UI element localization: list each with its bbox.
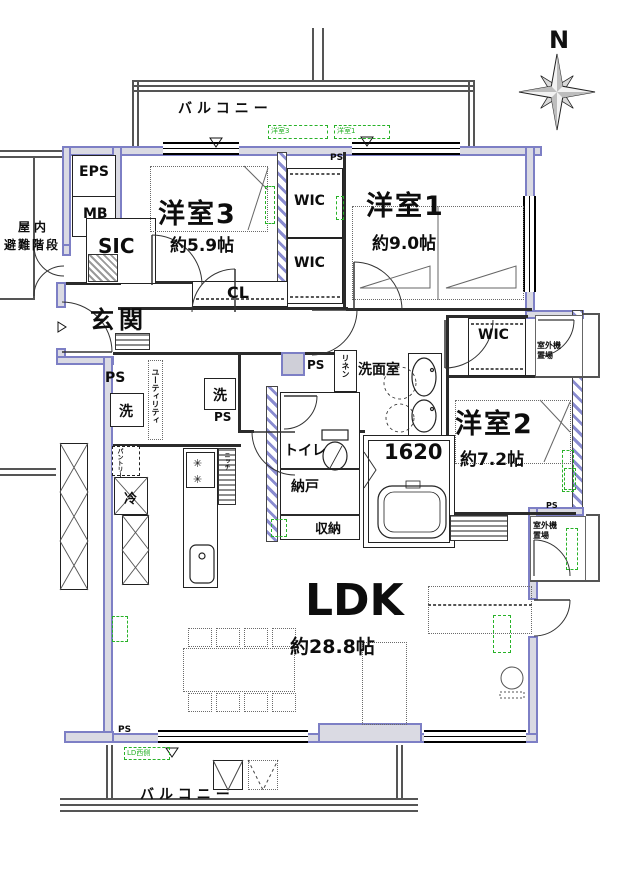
washer-left-label: 洗 <box>119 401 133 421</box>
niche-label: ニッチ <box>222 452 231 476</box>
annotation-room3-window: 洋室3 <box>268 125 328 139</box>
utility-label: ユーティリティ <box>150 368 161 434</box>
eps-label: EPS <box>79 164 109 180</box>
nando-label: 納戸 <box>291 476 319 496</box>
ldk-size: 約28.8帖 <box>290 632 375 659</box>
ps-label-bottom: PS <box>118 725 131 735</box>
linen-label: リネン <box>340 354 351 390</box>
wic2-label: WIC <box>294 255 325 271</box>
outdoor-bottom-label-2: 置場 <box>533 530 549 541</box>
room3-name: 洋室3 <box>158 192 237 231</box>
mb-label: MB <box>83 206 108 222</box>
x-hatches <box>60 443 149 590</box>
pantry-label: パントリー <box>115 448 124 475</box>
annotation-mark <box>112 616 128 642</box>
annotation-ld-west: LD西側 <box>124 747 170 760</box>
compass-north-label: N <box>549 26 569 54</box>
stairs-label-2: 避難階段 <box>4 236 60 253</box>
annotation-mark <box>265 186 275 224</box>
cl-label: CL <box>227 283 249 302</box>
balcony-v-marks <box>213 760 278 790</box>
stairs-label-1: 屋内 <box>18 218 50 235</box>
room3-size: 約5.9帖 <box>170 231 234 256</box>
sic-label: SIC <box>98 234 135 258</box>
annotation-mark <box>566 528 578 570</box>
ldk-name: LDK <box>305 575 404 626</box>
annotation-mark <box>493 615 511 653</box>
annotation-room1-window: 洋室1 <box>334 125 390 139</box>
svg-text:✳: ✳ <box>193 473 202 486</box>
room1-size: 約9.0帖 <box>372 229 436 254</box>
outdoor-top-label-2: 置場 <box>537 350 553 361</box>
genkan-label: 玄関 <box>90 300 148 335</box>
svg-text:✳: ✳ <box>193 457 202 470</box>
wic1-label: WIC <box>294 193 325 209</box>
compass-icon: N <box>519 26 595 130</box>
fridge-label: 冷 <box>124 488 137 507</box>
annotation-mark <box>336 196 344 220</box>
ldk-side-table <box>500 667 524 698</box>
kitchen-fixtures: ✳ ✳ <box>190 457 214 583</box>
ps-label-top: PS <box>330 153 343 163</box>
room2-name: 洋室2 <box>455 402 534 441</box>
senmen-label: 洗面室 <box>358 359 400 379</box>
washer-right-label: 洗 <box>213 385 227 405</box>
ps-label-left: PS <box>105 370 125 386</box>
shuno-label: 収納 <box>315 518 341 537</box>
annotation-mark <box>271 519 287 537</box>
bath-size-label: 1620 <box>384 440 442 464</box>
toilet-label: トイレ <box>284 440 326 460</box>
wic3-label: WIC <box>478 327 509 343</box>
ps-label-mid: PS <box>214 410 231 424</box>
annotation-mark <box>564 468 576 490</box>
floor-plan: バルコニー <box>0 0 625 869</box>
room1-name: 洋室1 <box>366 184 445 223</box>
ps-label-wash: PS <box>307 358 324 372</box>
ps-label-right: PS <box>546 501 558 510</box>
room2-size: 約7.2帖 <box>460 445 524 470</box>
